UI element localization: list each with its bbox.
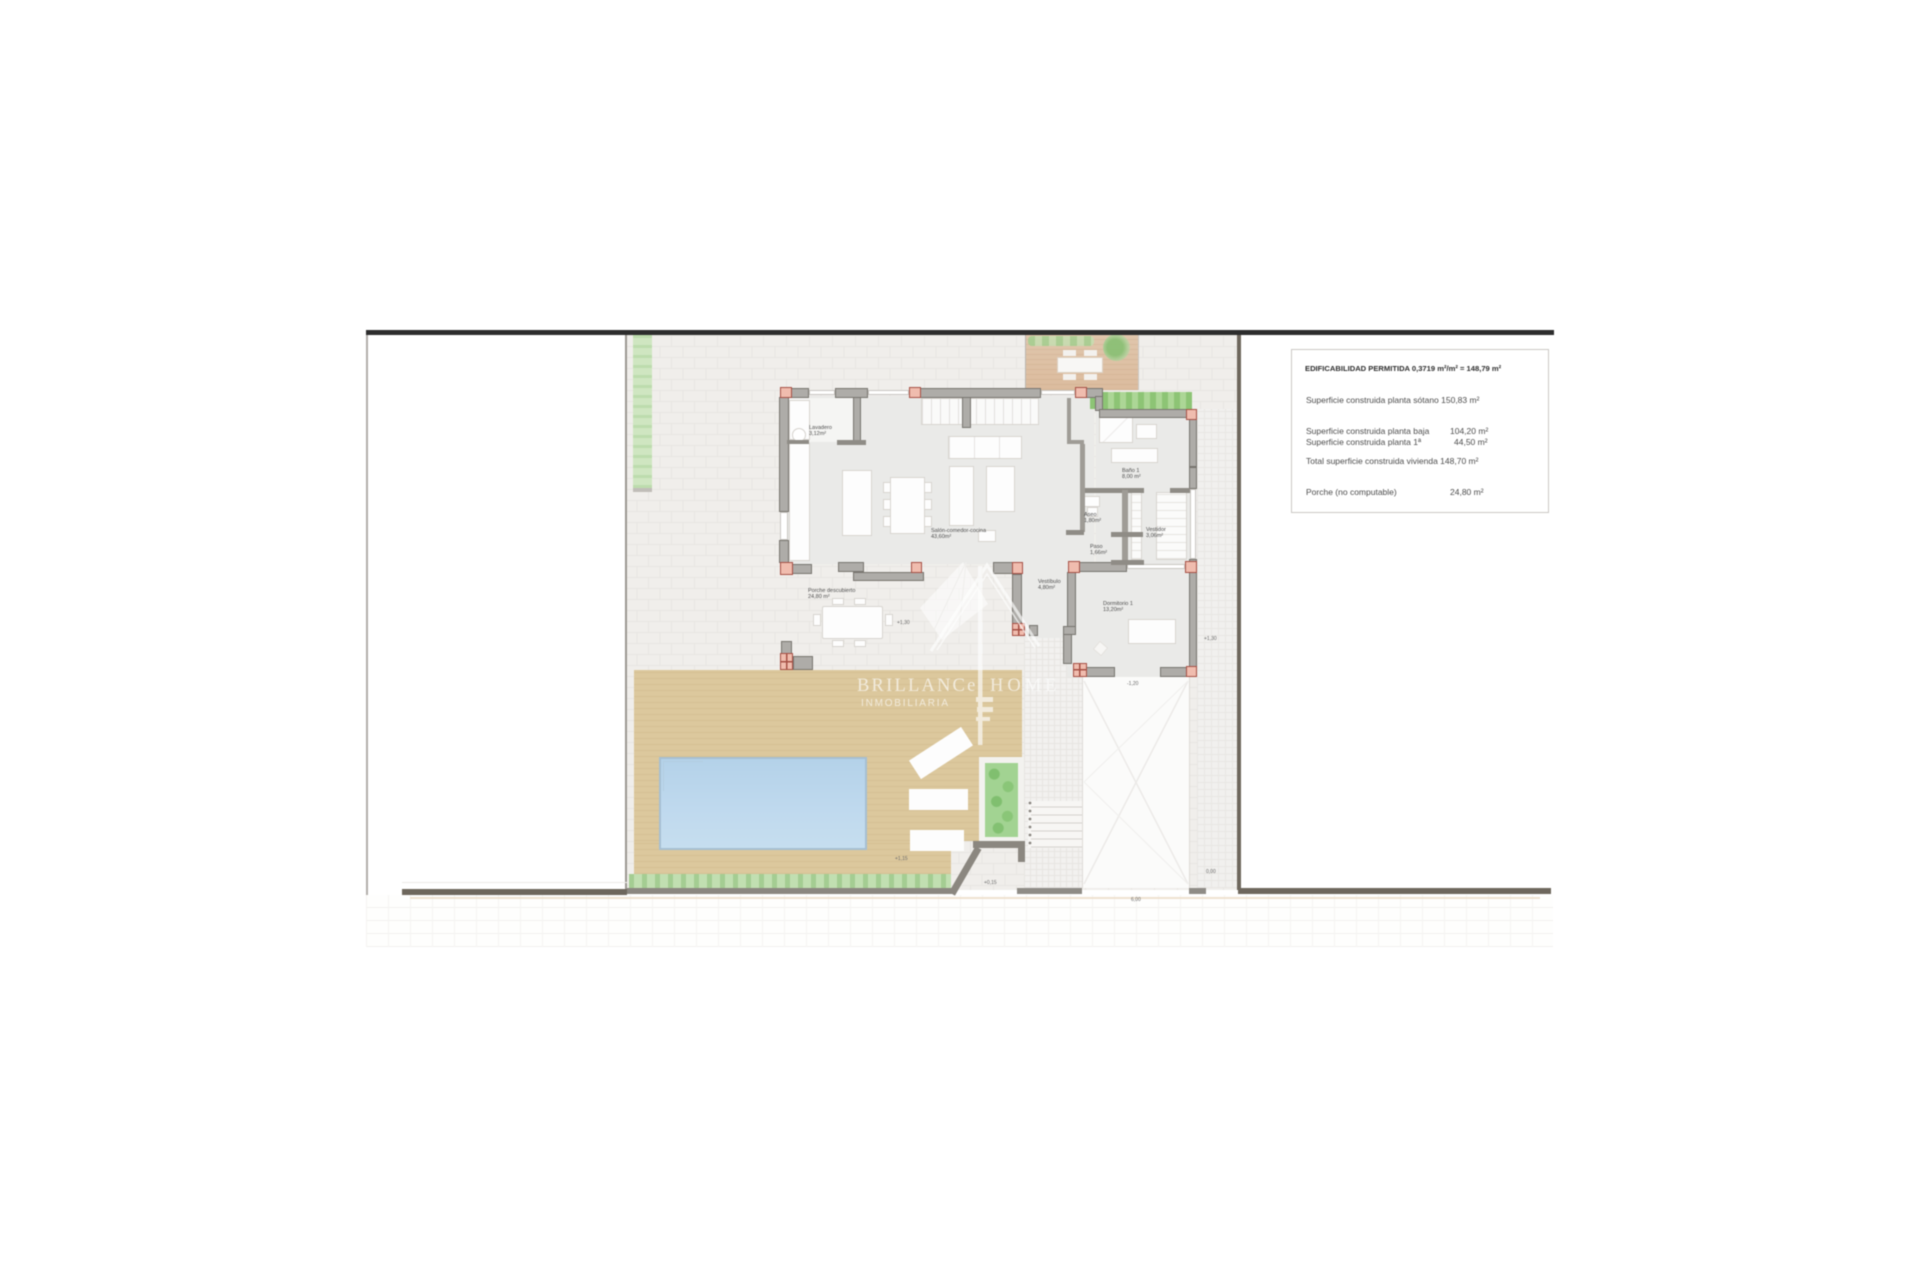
svg-text:INMOBILIARIA: INMOBILIARIA: [861, 698, 950, 709]
svg-text:BRILLANCe: BRILLANCe: [857, 676, 978, 696]
svg-text:HOME: HOME: [990, 676, 1060, 696]
